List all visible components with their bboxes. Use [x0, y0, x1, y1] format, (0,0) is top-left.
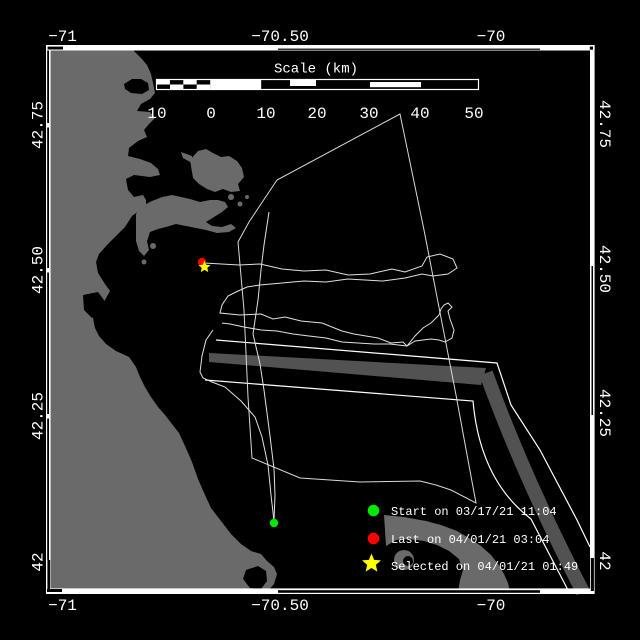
svg-text:42: 42: [595, 551, 613, 570]
svg-text:−71: −71: [48, 28, 77, 46]
svg-text:42.75: 42.75: [29, 101, 47, 149]
svg-text:40: 40: [410, 105, 429, 123]
svg-text:Selected on 04/01/21 01:49: Selected on 04/01/21 01:49: [391, 560, 578, 574]
svg-text:0: 0: [206, 105, 216, 123]
svg-text:42.50: 42.50: [595, 245, 613, 293]
svg-text:42.25: 42.25: [595, 389, 613, 437]
svg-text:Last on 04/01/21 03:04: Last on 04/01/21 03:04: [391, 533, 549, 547]
svg-text:−70.50: −70.50: [251, 28, 309, 46]
svg-text:−70.50: −70.50: [251, 597, 309, 615]
svg-text:50: 50: [464, 105, 483, 123]
svg-text:20: 20: [307, 105, 326, 123]
svg-text:30: 30: [359, 105, 378, 123]
svg-text:10: 10: [147, 105, 166, 123]
svg-text:10: 10: [256, 105, 275, 123]
svg-text:−71: −71: [48, 597, 77, 615]
svg-text:−70: −70: [477, 597, 506, 615]
svg-text:Scale (km): Scale (km): [274, 62, 358, 78]
svg-text:42.25: 42.25: [29, 392, 47, 440]
svg-text:Start on 03/17/21 11:04: Start on 03/17/21 11:04: [391, 505, 557, 519]
svg-text:42.50: 42.50: [29, 246, 47, 294]
svg-text:−70: −70: [477, 28, 506, 46]
svg-text:42.75: 42.75: [595, 100, 613, 148]
svg-text:42: 42: [29, 552, 47, 571]
